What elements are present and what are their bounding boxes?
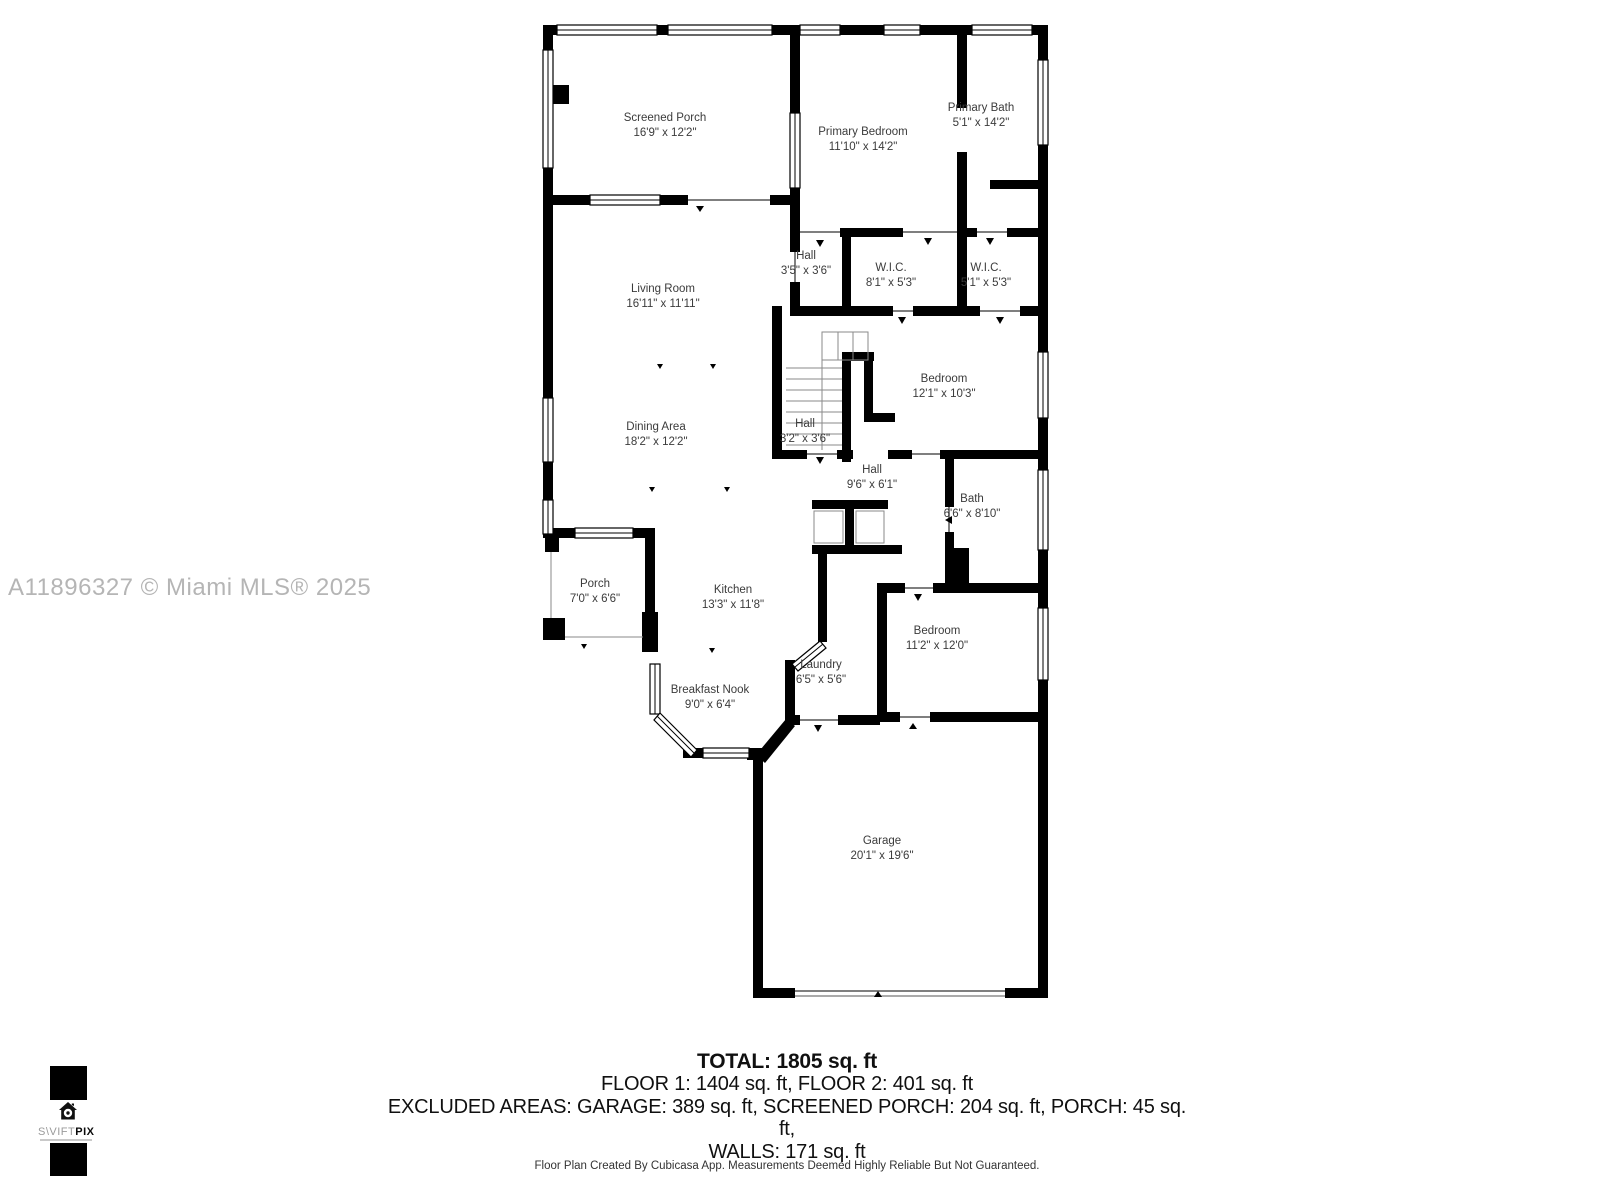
room-label-kitchen: Kitchen 13'3" x 11'8" bbox=[702, 583, 764, 613]
disclaimer-text: Floor Plan Created By Cubicasa App. Meas… bbox=[387, 1160, 1187, 1172]
room-label-porch: Porch 7'0" x 6'6" bbox=[570, 577, 620, 607]
logo-brand-text: S\VIFTPIX bbox=[38, 1126, 94, 1138]
floor-plan-page: Screened Porch 16'9" x 12'2" Primary Bed… bbox=[0, 0, 1600, 1200]
room-label-laundry: Laundry 6'5" x 5'6" bbox=[796, 658, 846, 688]
summary-excluded: EXCLUDED AREAS: GARAGE: 389 sq. ft, SCRE… bbox=[387, 1096, 1187, 1141]
logo-tagline-line bbox=[40, 1139, 92, 1141]
room-label-bedroom-3: Bedroom 11'2" x 12'0" bbox=[906, 624, 968, 654]
room-label-living-room: Living Room 16'11" x 11'11" bbox=[626, 282, 699, 312]
summary-floors: FLOOR 1: 1404 sq. ft, FLOOR 2: 401 sq. f… bbox=[387, 1073, 1187, 1096]
summary-total: TOTAL: 1805 sq. ft bbox=[387, 1050, 1187, 1073]
room-label-bath: Bath 6'6" x 8'10" bbox=[944, 492, 1001, 522]
logo-square-bottom bbox=[50, 1143, 87, 1176]
room-label-primary-bath: Primary Bath 5'1" x 14'2" bbox=[948, 101, 1014, 131]
room-label-hall-main: Hall 9'6" x 6'1" bbox=[847, 463, 897, 493]
logo-square-top bbox=[50, 1066, 87, 1100]
logo-brand-light: S\VIFT bbox=[38, 1126, 75, 1138]
room-label-hall-stairs: Hall 3'2" x 3'6" bbox=[780, 417, 830, 447]
mls-watermark: A11896327 © Miami MLS® 2025 bbox=[8, 574, 371, 602]
room-label-screened-porch: Screened Porch 16'9" x 12'2" bbox=[624, 111, 706, 141]
swiftpix-logo: S\VIFTPIX bbox=[38, 1066, 94, 1176]
room-label-hall-upper: Hall 3'5" x 3'6" bbox=[781, 249, 831, 279]
room-label-breakfast-nook: Breakfast Nook 9'0" x 6'4" bbox=[671, 683, 750, 713]
room-label-primary-bedroom: Primary Bedroom 11'10" x 14'2" bbox=[818, 125, 907, 155]
logo-brand-bold: PIX bbox=[75, 1126, 94, 1138]
room-label-garage: Garage 20'1" x 19'6" bbox=[850, 834, 913, 864]
area-summary: TOTAL: 1805 sq. ft FLOOR 1: 1404 sq. ft,… bbox=[387, 1050, 1187, 1163]
door-markers bbox=[581, 206, 1004, 997]
room-label-bedroom-2: Bedroom 12'1" x 10'3" bbox=[912, 372, 975, 402]
room-label-wic-1: W.I.C. 8'1" x 5'3" bbox=[866, 261, 916, 291]
room-label-dining-area: Dining Area 18'2" x 12'2" bbox=[624, 420, 687, 450]
room-label-wic-2: W.I.C. 5'1" x 5'3" bbox=[961, 261, 1011, 291]
house-camera-icon bbox=[57, 1102, 79, 1120]
